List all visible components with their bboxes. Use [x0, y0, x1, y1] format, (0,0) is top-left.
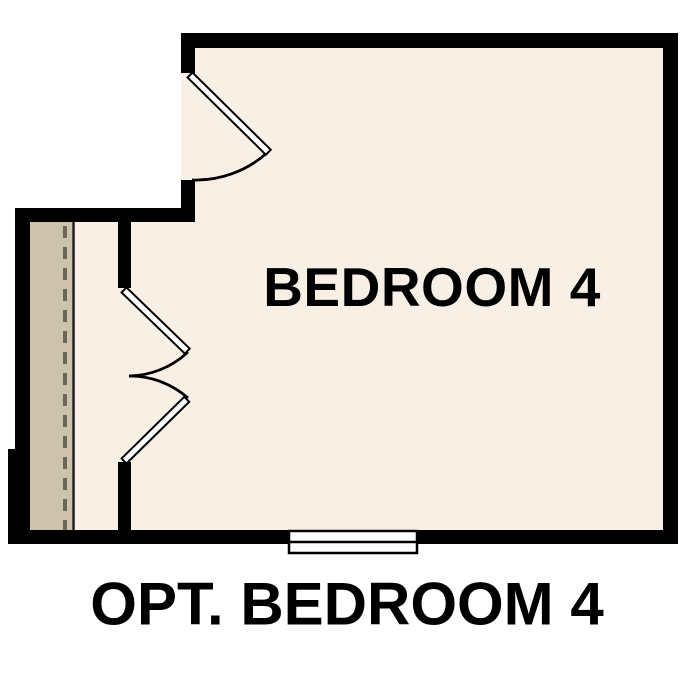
- room-label: BEDROOM 4: [263, 255, 601, 319]
- plan-caption: OPT. BEDROOM 4: [90, 570, 603, 639]
- wall-hall-top: [15, 208, 195, 222]
- wall-bedroom-left-lower: [181, 180, 195, 222]
- window: [289, 531, 417, 553]
- wall-partition-upper-stub: [118, 222, 131, 288]
- wall-top: [181, 33, 678, 48]
- wall-left-lower: [8, 449, 30, 544]
- wall-bedroom-left-stub-top: [181, 33, 195, 73]
- wall-partition-lower-stub: [118, 462, 131, 530]
- floorplan-figure: BEDROOM 4 OPT. BEDROOM 4: [0, 0, 687, 687]
- wall-left-upper: [15, 208, 30, 449]
- wall-right: [663, 33, 678, 544]
